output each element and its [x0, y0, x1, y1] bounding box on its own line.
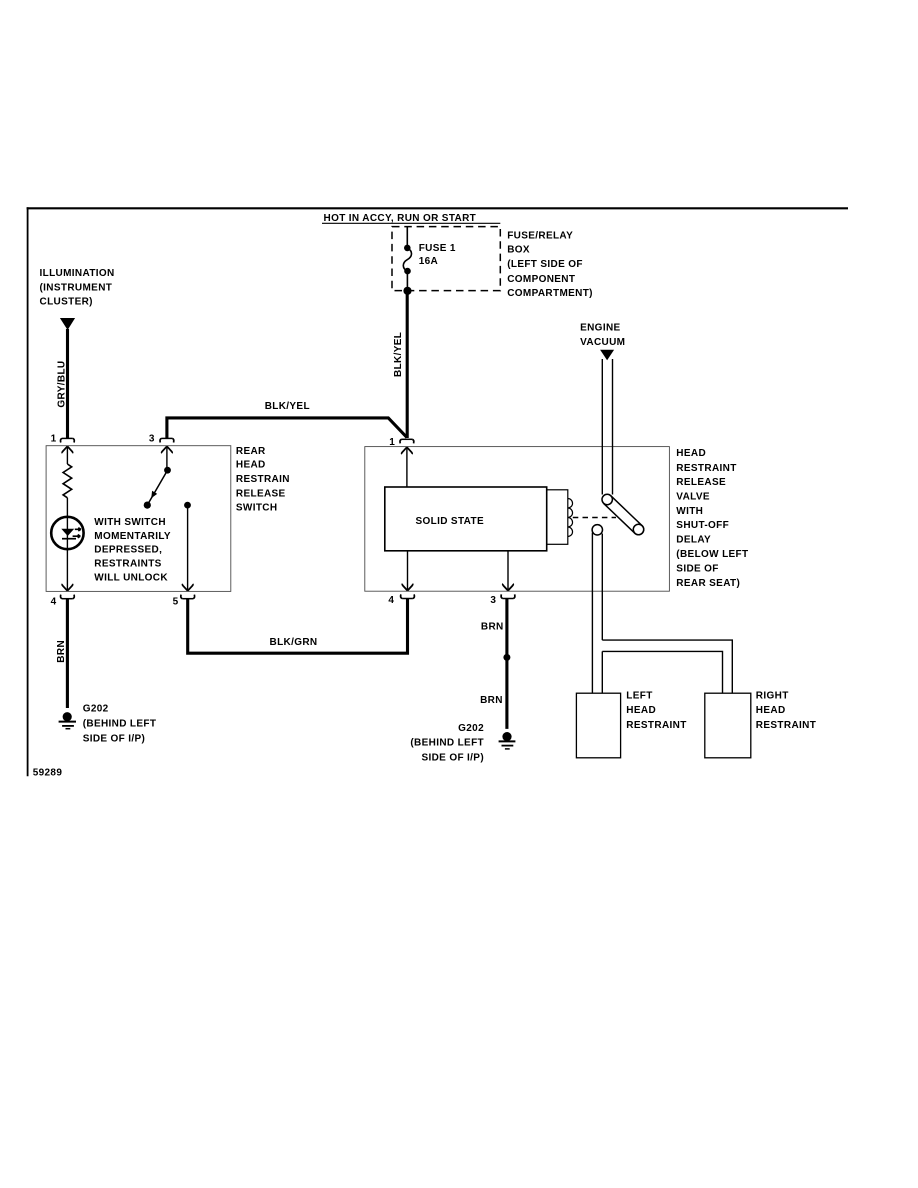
svg-text:5: 5: [173, 597, 179, 608]
svg-text:4: 4: [51, 597, 57, 608]
svg-text:BRN: BRN: [480, 695, 503, 706]
svg-text:HEAD: HEAD: [756, 705, 786, 716]
svg-text:HOT IN ACCY, RUN OR START: HOT IN ACCY, RUN OR START: [324, 213, 477, 224]
svg-text:WITH SWITCH: WITH SWITCH: [94, 517, 166, 528]
svg-text:SWITCH: SWITCH: [236, 503, 278, 514]
svg-text:RESTRAIN: RESTRAIN: [236, 474, 290, 485]
svg-text:SHUT-OFF: SHUT-OFF: [676, 520, 729, 531]
svg-text:59289: 59289: [33, 768, 63, 779]
svg-text:FUSE 1: FUSE 1: [419, 243, 456, 254]
svg-text:RESTRAINT: RESTRAINT: [756, 720, 816, 731]
svg-text:HEAD: HEAD: [626, 705, 656, 716]
svg-text:RELEASE: RELEASE: [236, 488, 286, 499]
svg-text:1: 1: [389, 437, 395, 448]
svg-text:COMPONENT: COMPONENT: [507, 274, 575, 285]
svg-text:SIDE OF I/P): SIDE OF I/P): [83, 733, 146, 744]
svg-text:16A: 16A: [419, 256, 438, 267]
svg-text:WITH: WITH: [676, 506, 703, 517]
svg-text:SOLID STATE: SOLID STATE: [416, 516, 484, 527]
svg-text:BOX: BOX: [507, 244, 530, 255]
svg-text:VACUUM: VACUUM: [580, 337, 625, 348]
svg-text:RESTRAINTS: RESTRAINTS: [94, 559, 161, 570]
svg-text:3: 3: [490, 595, 496, 606]
svg-text:REAR SEAT): REAR SEAT): [676, 578, 740, 589]
svg-text:HEAD: HEAD: [236, 460, 266, 471]
svg-text:SIDE OF I/P): SIDE OF I/P): [421, 753, 484, 764]
svg-text:BLK/YEL: BLK/YEL: [265, 401, 310, 412]
svg-text:G202: G202: [458, 723, 484, 734]
svg-text:HEAD: HEAD: [676, 448, 706, 459]
svg-text:BRN: BRN: [481, 621, 504, 632]
svg-text:RESTRAINT: RESTRAINT: [626, 720, 686, 731]
svg-text:4: 4: [388, 595, 394, 606]
svg-text:LEFT: LEFT: [626, 690, 652, 701]
svg-text:ILLUMINATION: ILLUMINATION: [40, 268, 115, 279]
svg-text:WILL UNLOCK: WILL UNLOCK: [94, 573, 168, 584]
svg-text:G202: G202: [83, 704, 109, 715]
svg-text:REAR: REAR: [236, 446, 266, 457]
svg-text:DEPRESSED,: DEPRESSED,: [94, 545, 162, 556]
svg-text:DELAY: DELAY: [676, 535, 711, 546]
svg-text:BLK/GRN: BLK/GRN: [270, 637, 318, 648]
svg-text:MOMENTARILY: MOMENTARILY: [94, 531, 171, 542]
svg-text:FUSE/RELAY: FUSE/RELAY: [507, 231, 573, 242]
svg-text:GRY/BLU: GRY/BLU: [56, 361, 67, 408]
svg-text:(LEFT SIDE OF: (LEFT SIDE OF: [507, 259, 583, 270]
svg-text:BRN: BRN: [56, 640, 67, 663]
svg-text:(BEHIND LEFT: (BEHIND LEFT: [410, 738, 484, 749]
svg-text:VALVE: VALVE: [676, 492, 710, 503]
svg-text:BLK/YEL: BLK/YEL: [393, 332, 404, 377]
svg-text:ENGINE: ENGINE: [580, 322, 620, 333]
svg-text:COMPARTMENT): COMPARTMENT): [507, 288, 593, 299]
svg-text:(BELOW LEFT: (BELOW LEFT: [676, 549, 748, 560]
svg-text:RELEASE: RELEASE: [676, 477, 726, 488]
svg-text:RESTRAINT: RESTRAINT: [676, 463, 736, 474]
svg-text:(INSTRUMENT: (INSTRUMENT: [40, 282, 113, 293]
svg-text:1: 1: [51, 433, 57, 444]
svg-text:RIGHT: RIGHT: [756, 690, 789, 701]
svg-text:CLUSTER): CLUSTER): [40, 297, 93, 308]
svg-text:3: 3: [149, 433, 155, 444]
svg-text:SIDE OF: SIDE OF: [676, 563, 718, 574]
svg-text:(BEHIND LEFT: (BEHIND LEFT: [83, 719, 157, 730]
